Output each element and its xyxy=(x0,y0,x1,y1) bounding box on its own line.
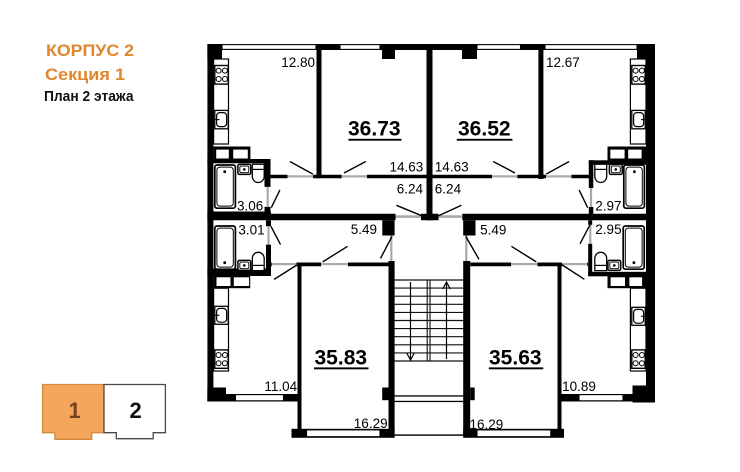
svg-text:36.52: 36.52 xyxy=(458,118,511,141)
svg-text:16.29: 16.29 xyxy=(470,417,504,432)
svg-text:2.97: 2.97 xyxy=(595,198,621,213)
svg-text:5.49: 5.49 xyxy=(480,223,506,238)
svg-text:14.63: 14.63 xyxy=(390,160,424,175)
svg-text:36.73: 36.73 xyxy=(348,118,401,141)
svg-text:КОРПУС 2: КОРПУС 2 xyxy=(46,42,134,60)
svg-text:3.01: 3.01 xyxy=(238,222,264,237)
svg-text:2.95: 2.95 xyxy=(595,222,621,237)
svg-text:3.06: 3.06 xyxy=(237,199,263,214)
svg-text:35.63: 35.63 xyxy=(489,347,542,370)
svg-text:План 2 этажа: План 2 этажа xyxy=(44,88,134,105)
svg-text:2: 2 xyxy=(130,398,142,423)
svg-text:12.80: 12.80 xyxy=(281,55,315,70)
svg-text:6.24: 6.24 xyxy=(435,181,462,196)
svg-text:1: 1 xyxy=(69,398,81,423)
svg-text:12.67: 12.67 xyxy=(546,55,580,70)
svg-text:5.49: 5.49 xyxy=(351,222,377,237)
svg-text:11.04: 11.04 xyxy=(264,379,297,394)
svg-text:6.24: 6.24 xyxy=(397,181,424,196)
svg-text:10.89: 10.89 xyxy=(562,379,596,394)
svg-text:14.63: 14.63 xyxy=(435,160,469,175)
svg-text:35.83: 35.83 xyxy=(315,347,368,370)
svg-text:16.29: 16.29 xyxy=(354,416,388,431)
svg-text:Секция 1: Секция 1 xyxy=(45,66,125,84)
